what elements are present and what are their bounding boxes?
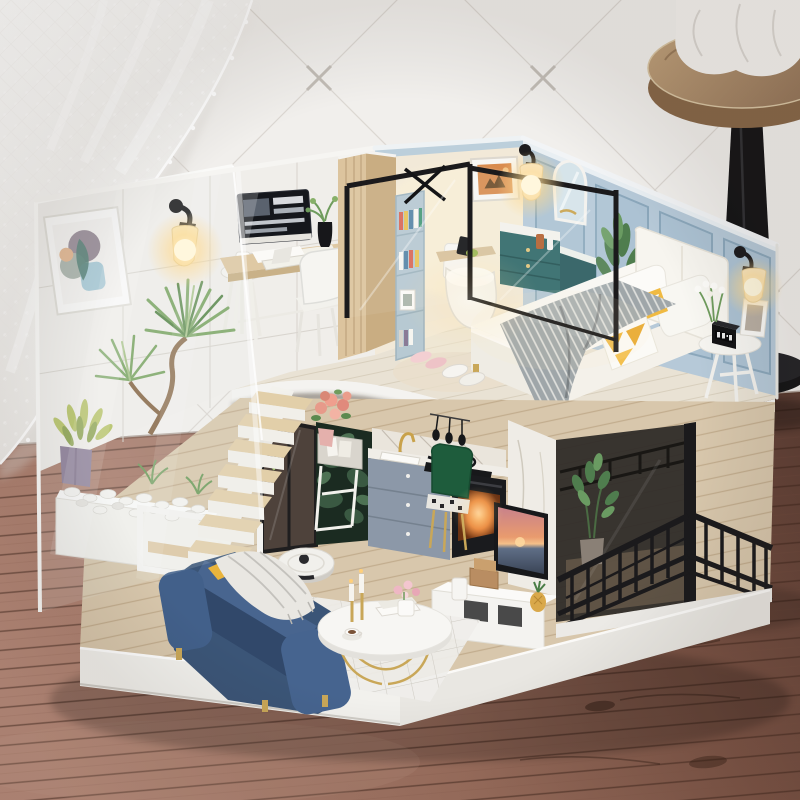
photo-vignette [0,0,800,800]
photo-dollhouse-scene [0,0,800,800]
scene-canvas [0,0,800,800]
